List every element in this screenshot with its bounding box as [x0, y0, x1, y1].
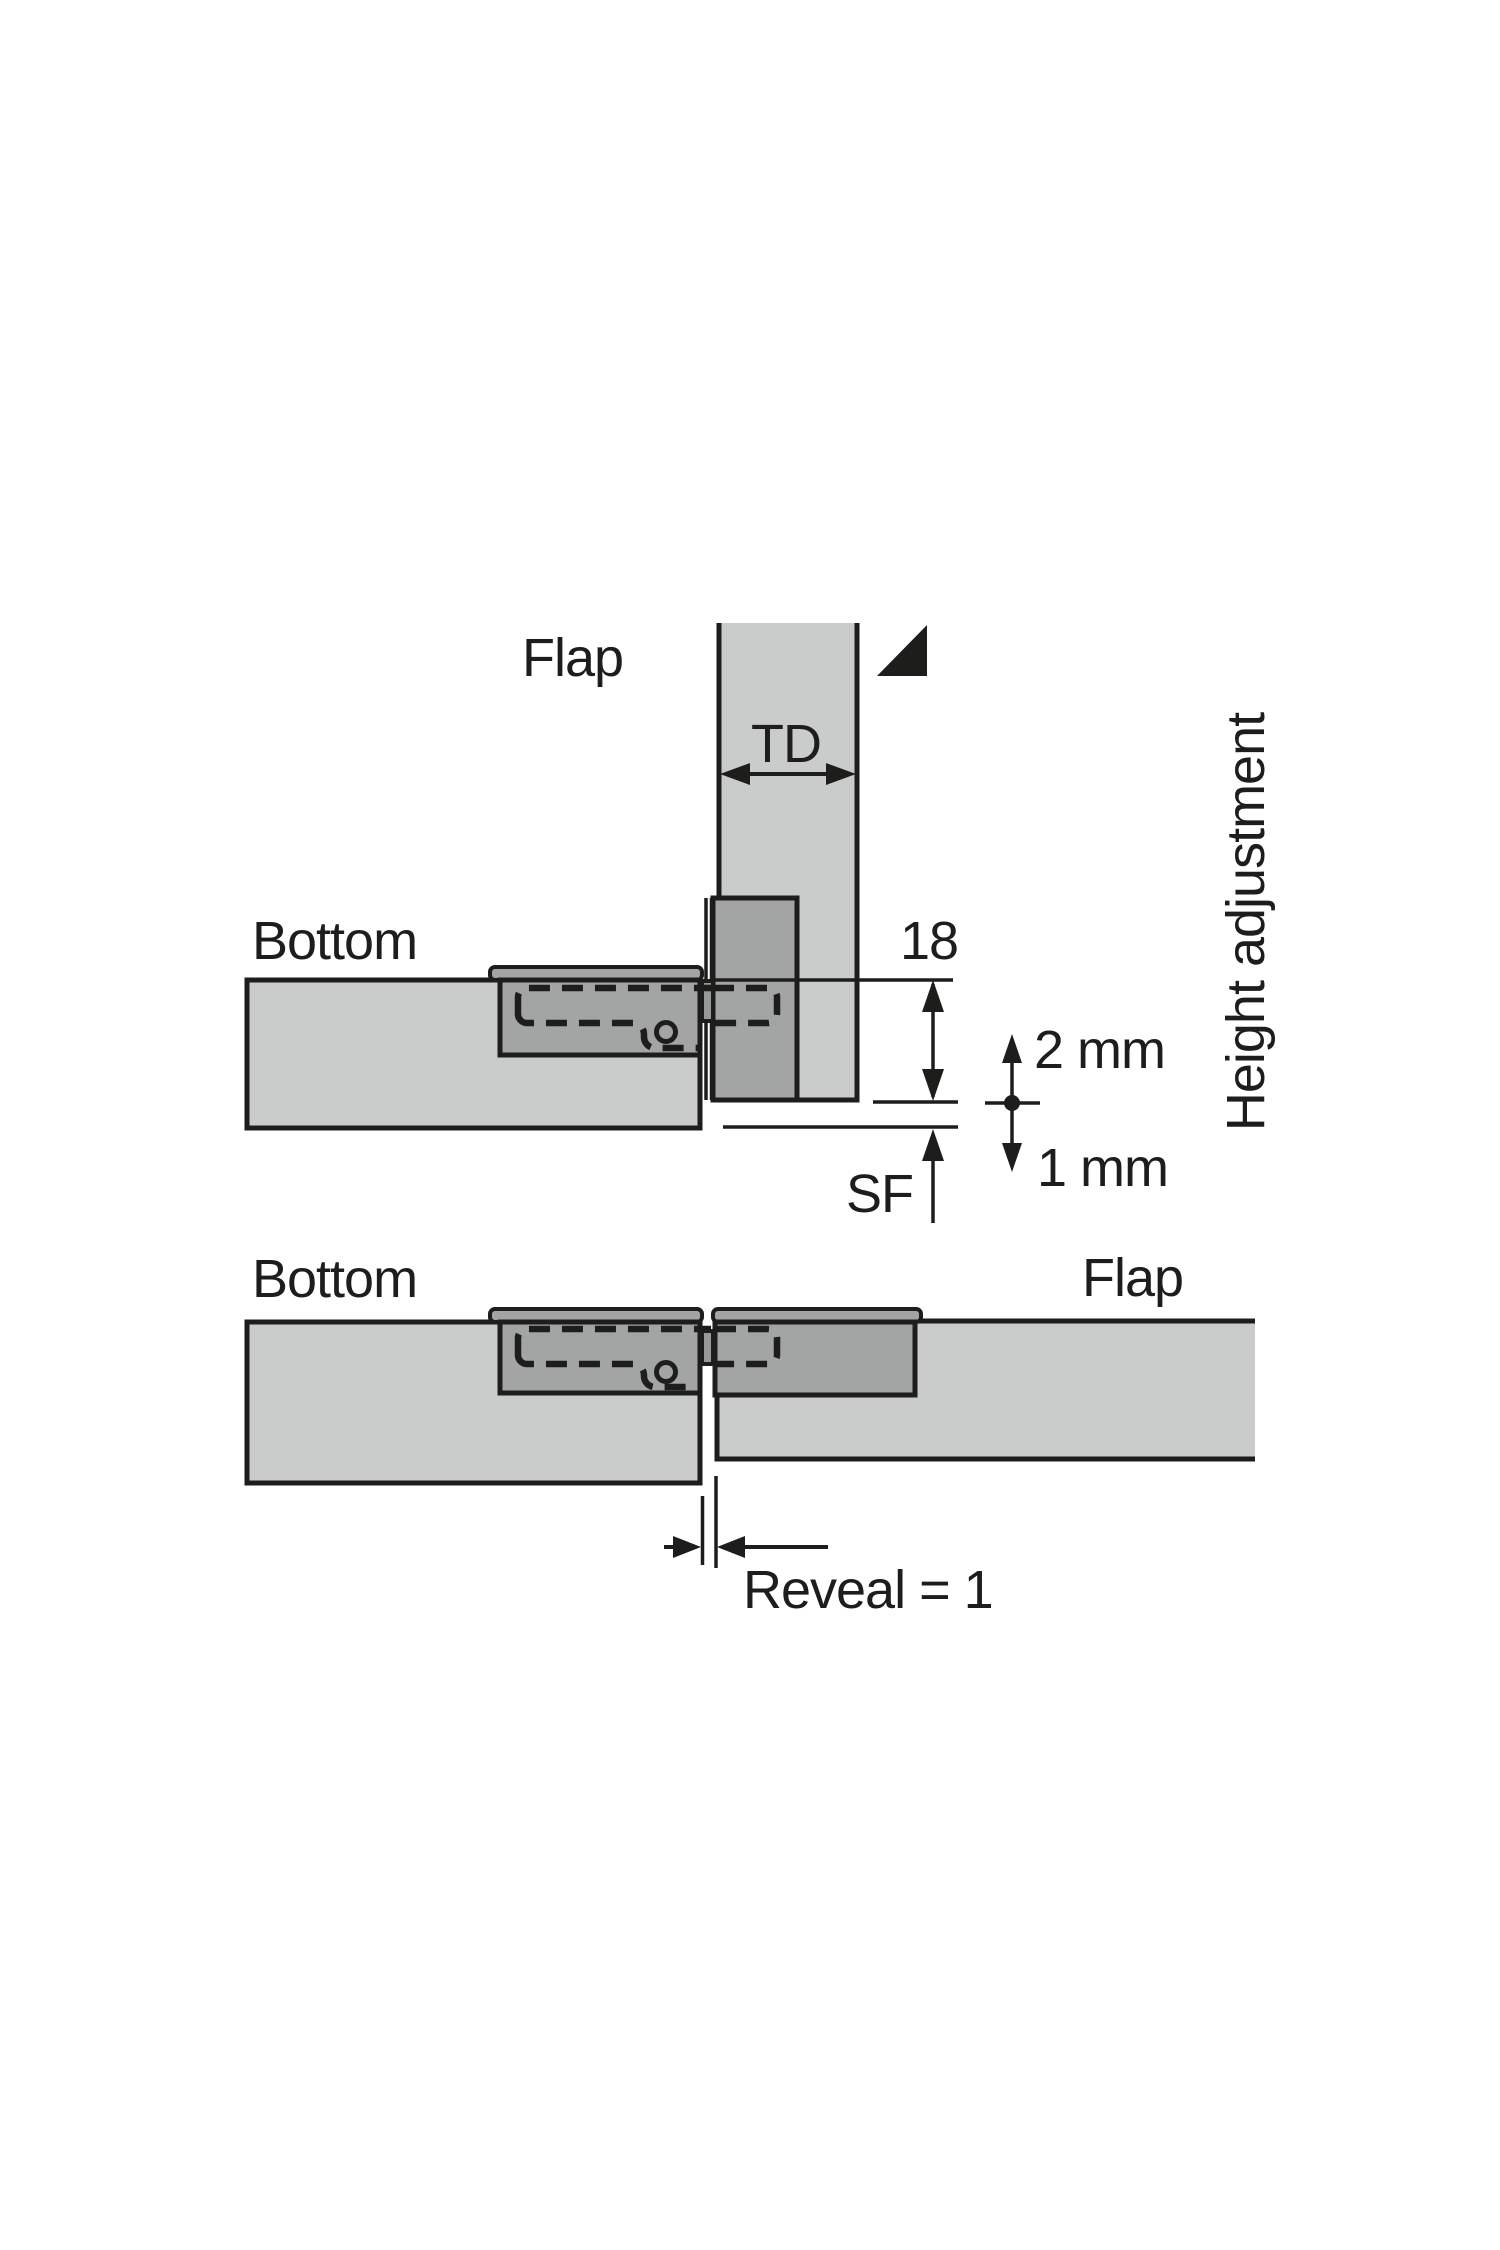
height-adjustment-label: Height adjustment [1216, 712, 1276, 1131]
reveal-arrow-left-icon [717, 1536, 745, 1558]
top-diagram: Flap Bottom TD 18 SF 2 mm 1 mm Height ad… [247, 623, 1276, 1224]
bottom-label-2: Bottom [252, 1249, 417, 1309]
bottom-label-top: Bottom [252, 911, 417, 971]
flap-label-top: Flap [522, 628, 623, 688]
adjust-up-label: 2 mm [1034, 1020, 1165, 1080]
dim-18-arrow-down-icon [922, 1069, 944, 1101]
bottom-diagram: Bottom Flap Reveal = 1 [247, 1248, 1255, 1620]
td-label: TD [751, 714, 821, 774]
height-adjustment-indicator [985, 1034, 1040, 1172]
sf-arrow-up-icon [922, 1129, 944, 1161]
adjust-arrow-down-icon [1002, 1143, 1022, 1172]
reveal-label: Reveal = 1 [743, 1560, 993, 1620]
reveal-arrow-right-icon [673, 1536, 701, 1558]
reveal-dimension [664, 1536, 828, 1558]
hinge-cup-2 [715, 1322, 915, 1395]
adjust-arrow-up-icon [1002, 1034, 1022, 1063]
flap-label-2: Flap [1082, 1248, 1183, 1308]
application-triangle-icon [877, 625, 927, 676]
hinge-cup [713, 898, 797, 1100]
adjust-down-label: 1 mm [1037, 1138, 1168, 1198]
sf-label: SF [846, 1164, 913, 1224]
diagram-page: Flap Bottom TD 18 SF 2 mm 1 mm Height ad… [0, 0, 1500, 2250]
hinge-knuckle-2 [702, 1331, 713, 1364]
dim-18-arrow-up-icon [922, 980, 944, 1012]
adjust-zero-dot-icon [1004, 1095, 1020, 1111]
dim-18-label: 18 [900, 911, 958, 971]
hinge-installation-diagram: Flap Bottom TD 18 SF 2 mm 1 mm Height ad… [0, 0, 1500, 2250]
